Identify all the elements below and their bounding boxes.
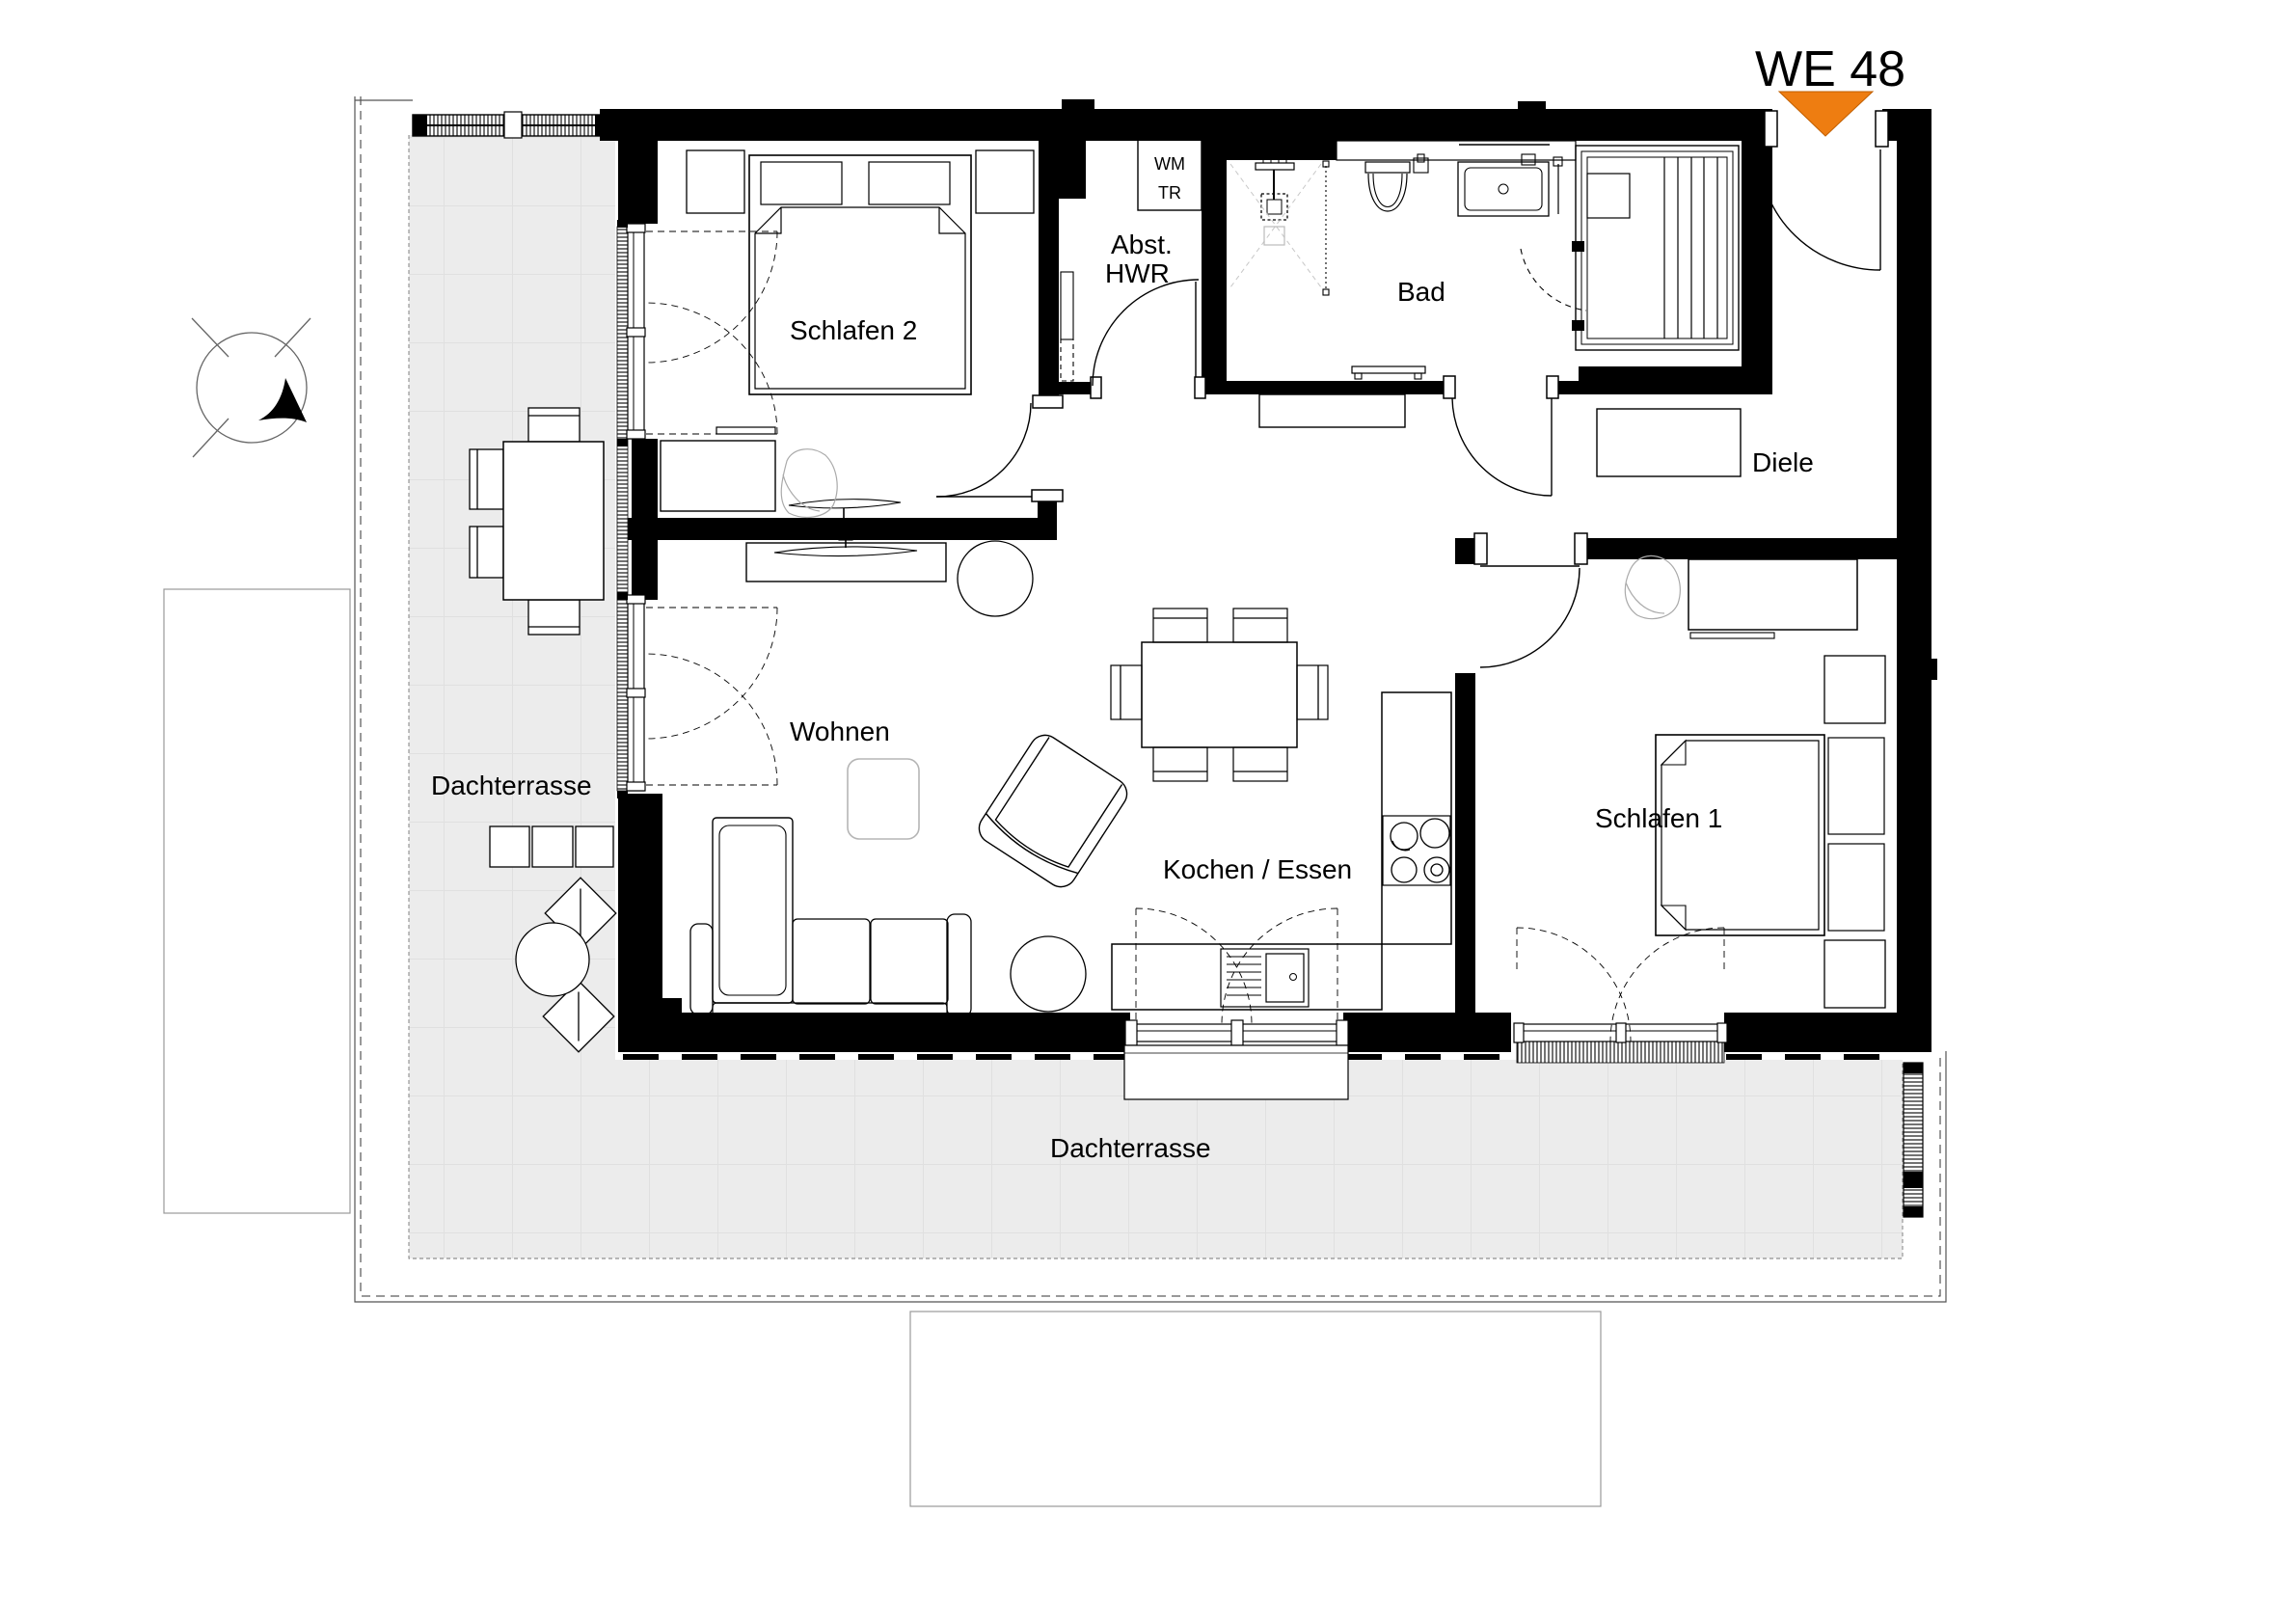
svg-text:Dachterrasse: Dachterrasse <box>431 771 592 800</box>
svg-text:Schlafen 2: Schlafen 2 <box>790 315 917 345</box>
svg-text:Diele: Diele <box>1752 447 1814 477</box>
svg-text:Abst.: Abst. <box>1111 230 1173 259</box>
svg-text:Schlafen 1: Schlafen 1 <box>1595 803 1722 833</box>
svg-text:HWR: HWR <box>1105 258 1170 288</box>
svg-text:Dachterrasse: Dachterrasse <box>1050 1133 1211 1163</box>
svg-text:Wohnen: Wohnen <box>790 717 890 746</box>
svg-text:Kochen / Essen: Kochen / Essen <box>1163 854 1352 884</box>
svg-text:WM: WM <box>1154 154 1185 174</box>
svg-text:TR: TR <box>1158 183 1181 203</box>
svg-text:WE 48: WE 48 <box>1755 41 1905 97</box>
svg-text:Bad: Bad <box>1397 277 1445 307</box>
